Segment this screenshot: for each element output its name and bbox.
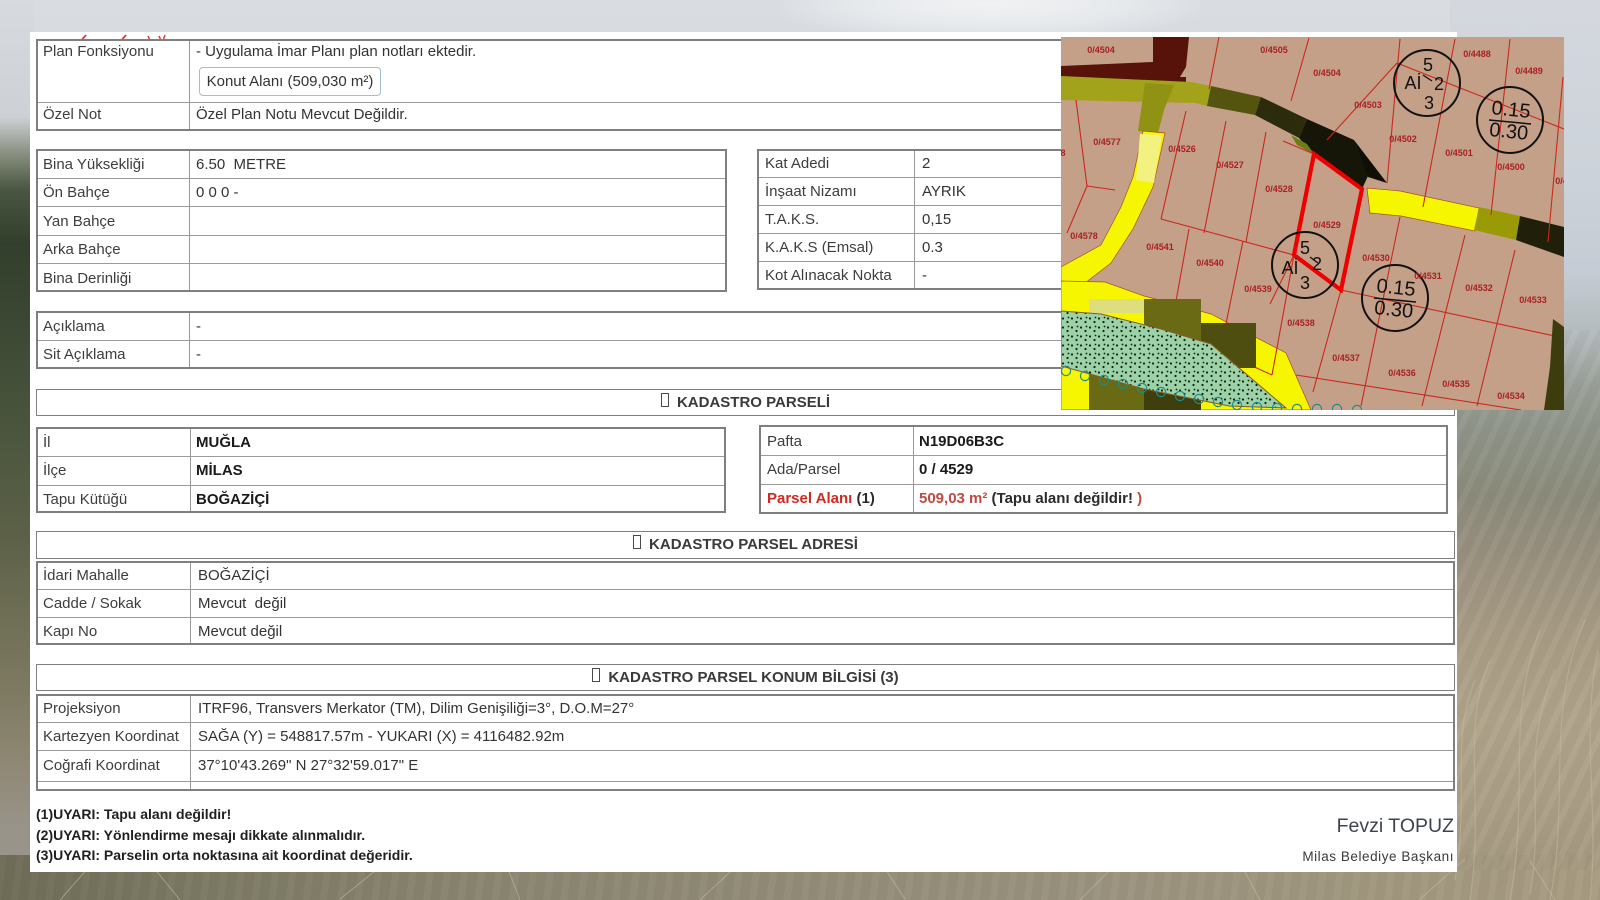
svg-text:0/4535: 0/4535	[1442, 379, 1470, 389]
svg-text:0/4541: 0/4541	[1146, 242, 1174, 252]
svg-text:0/4540: 0/4540	[1196, 258, 1224, 268]
svg-text:0/4529: 0/4529	[1313, 220, 1341, 230]
svg-text:8: 8	[1061, 148, 1066, 158]
svg-text:0/4489: 0/4489	[1515, 66, 1543, 76]
svg-text:0/4537: 0/4537	[1332, 353, 1360, 363]
svg-text:3: 3	[1424, 93, 1434, 113]
svg-text:0/4530: 0/4530	[1362, 253, 1390, 263]
svg-text:0/4534: 0/4534	[1497, 391, 1525, 401]
svg-text:0/4505: 0/4505	[1260, 45, 1288, 55]
svg-text:0/4500: 0/4500	[1497, 162, 1525, 172]
svg-text:0/4578: 0/4578	[1070, 231, 1098, 241]
svg-text:5: 5	[1423, 55, 1433, 75]
svg-text:0/4504: 0/4504	[1087, 45, 1115, 55]
svg-text:2: 2	[1434, 74, 1444, 94]
svg-text:0/4532: 0/4532	[1465, 283, 1493, 293]
svg-text:0/4538: 0/4538	[1287, 318, 1315, 328]
svg-text:0/4536: 0/4536	[1388, 368, 1416, 378]
svg-text:0/4577: 0/4577	[1093, 137, 1121, 147]
svg-text:0/4526: 0/4526	[1168, 144, 1196, 154]
svg-text:0/4502: 0/4502	[1389, 134, 1417, 144]
svg-text:0/4539: 0/4539	[1244, 284, 1272, 294]
svg-text:0/4501: 0/4501	[1445, 148, 1473, 158]
svg-text:0/4531: 0/4531	[1414, 271, 1442, 281]
svg-text:0/4533: 0/4533	[1519, 295, 1547, 305]
svg-text:0/45: 0/45	[1555, 176, 1564, 186]
svg-text:0/4528: 0/4528	[1265, 184, 1293, 194]
svg-text:0/4503: 0/4503	[1354, 100, 1382, 110]
svg-text:Aİ: Aİ	[1281, 258, 1298, 278]
svg-text:2: 2	[1312, 254, 1322, 274]
svg-text:0/4527: 0/4527	[1216, 160, 1244, 170]
svg-text:0/4504: 0/4504	[1313, 68, 1341, 78]
svg-text:3: 3	[1300, 273, 1310, 293]
svg-text:5: 5	[1300, 238, 1310, 258]
svg-text:Aİ: Aİ	[1404, 73, 1421, 93]
svg-text:0/4488: 0/4488	[1463, 49, 1491, 59]
